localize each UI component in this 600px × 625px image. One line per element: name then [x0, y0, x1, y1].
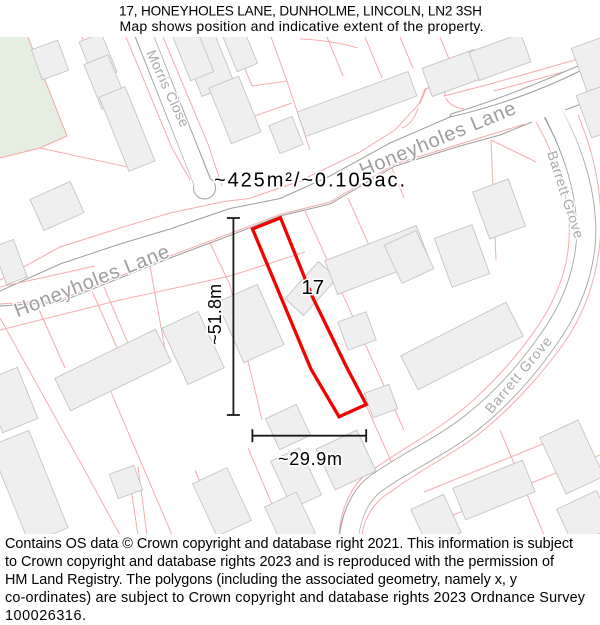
svg-text:to Crown copyright and databas: to Crown copyright and database rights 2… — [5, 554, 555, 570]
svg-text:100026316.: 100026316. — [5, 608, 86, 624]
svg-text:~51.8m: ~51.8m — [205, 284, 225, 345]
svg-text:Contains OS data © Crown copyr: Contains OS data © Crown copyright and d… — [5, 536, 573, 552]
svg-text:17, HONEYHOLES LANE, DUNHOLME,: 17, HONEYHOLES LANE, DUNHOLME, LINCOLN, … — [119, 4, 482, 19]
svg-text:~29.9m: ~29.9m — [278, 449, 342, 469]
svg-text:~425m²/~0.105ac.: ~425m²/~0.105ac. — [214, 170, 405, 192]
svg-text:Map shows position and indicat: Map shows position and indicative extent… — [120, 18, 484, 34]
svg-text:17: 17 — [301, 276, 324, 299]
svg-text:co-ordinates) are subject to C: co-ordinates) are subject to Crown copyr… — [5, 590, 586, 606]
svg-text:HM Land Registry. The polygons: HM Land Registry. The polygons (includin… — [5, 572, 518, 588]
